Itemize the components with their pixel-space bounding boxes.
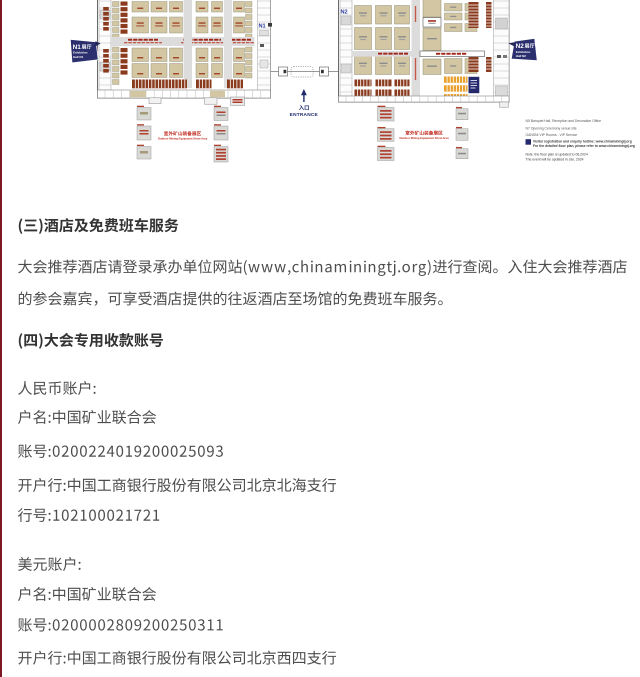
svg-text:Outdoor Mining Equipment Show: Outdoor Mining Equipment Show Area xyxy=(158,137,208,141)
svg-text:Note: the floor plan is update: Note: the floor plan is updated to 06,20… xyxy=(526,152,588,156)
svg-text:For the detailed floor plan, p: For the detailed floor plan, please refe… xyxy=(533,144,635,148)
svg-text:Visitor registration and enqui: Visitor registration and enquiry hotline… xyxy=(533,140,632,144)
svg-text:ENTRANCE: ENTRANCE xyxy=(290,112,319,118)
svg-text:Hall N2: Hall N2 xyxy=(516,54,527,58)
svg-text:N7 Opening Ceremony venue site: N7 Opening Ceremony venue site xyxy=(526,127,577,131)
svg-text:N5 Banquet Hall, Reception and: N5 Banquet Hall, Reception and Decoratio… xyxy=(526,119,602,123)
svg-text:The event will be updated in J: The event will be updated in Jan, 2024 xyxy=(526,158,584,162)
svg-text:Hall N1: Hall N1 xyxy=(73,55,84,59)
svg-text:Outdoor Mining Equipment Show: Outdoor Mining Equipment Show Area xyxy=(399,136,449,140)
svg-text:GANSNI VIP Rooms - VIP Service: GANSNI VIP Rooms - VIP Service xyxy=(526,133,578,137)
svg-text:N2: N2 xyxy=(341,10,348,16)
svg-text:N1: N1 xyxy=(259,24,266,30)
